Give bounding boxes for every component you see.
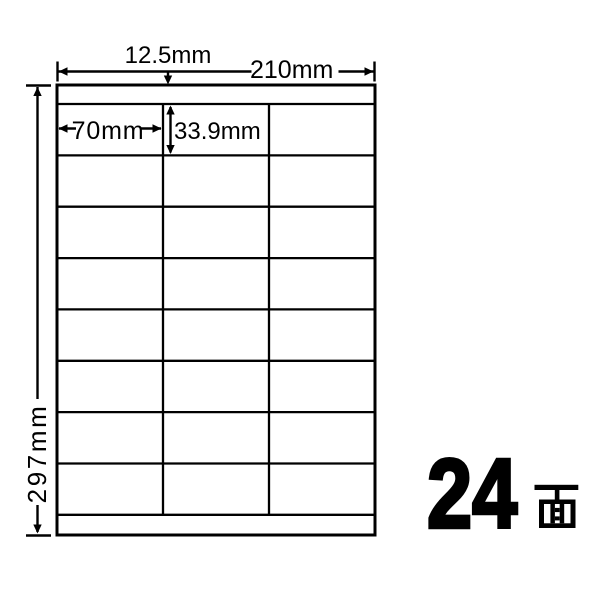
svg-text:210mm: 210mm	[250, 56, 333, 84]
svg-text:297mm: 297mm	[22, 404, 52, 504]
svg-text:24: 24	[427, 439, 517, 549]
svg-text:12.5mm: 12.5mm	[125, 42, 212, 69]
svg-text:70mm: 70mm	[72, 117, 145, 145]
svg-text:33.9mm: 33.9mm	[174, 118, 261, 145]
